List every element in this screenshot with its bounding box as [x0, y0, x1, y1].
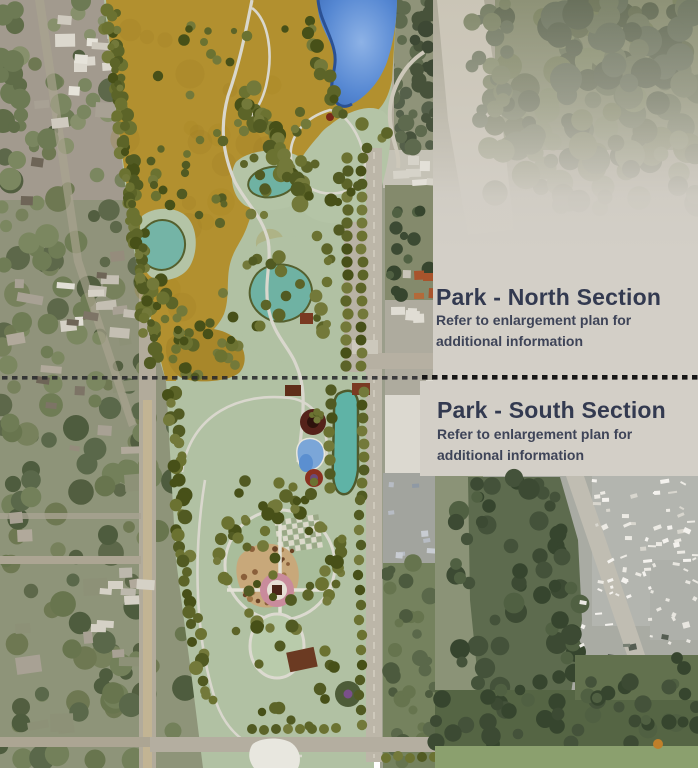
svg-text:additional information: additional information	[436, 333, 583, 349]
svg-text:Refer to enlargement plan for: Refer to enlargement plan for	[437, 426, 633, 442]
svg-text:Refer to enlargement plan for: Refer to enlargement plan for	[436, 312, 632, 328]
svg-text:additional information: additional information	[437, 447, 584, 463]
svg-text:Park - North Section: Park - North Section	[436, 284, 661, 310]
svg-text:Park - South Section: Park - South Section	[437, 397, 666, 423]
